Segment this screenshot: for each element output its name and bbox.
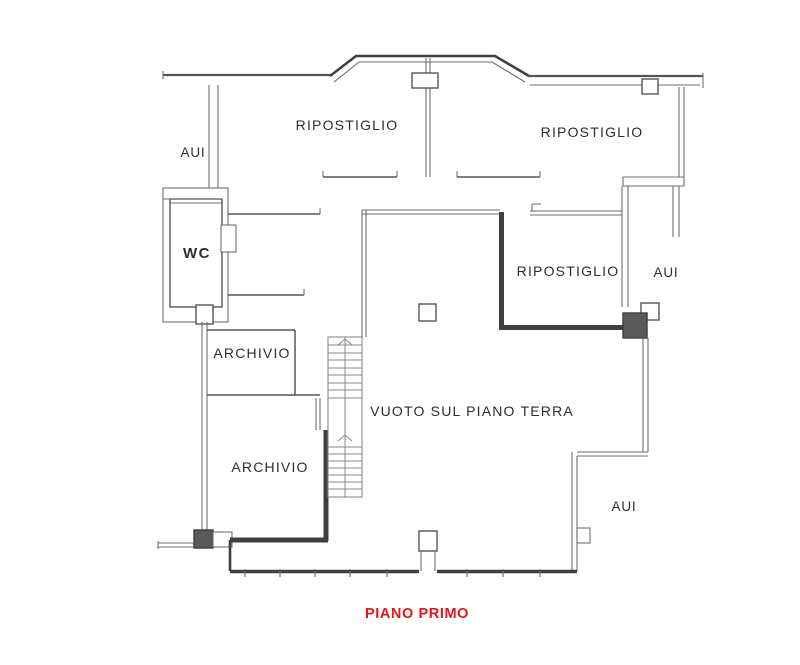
wall-notch — [577, 528, 590, 543]
staircase — [328, 337, 362, 497]
right-aui-dark-pillar — [623, 313, 647, 338]
room-label-aui-mid-right: AUI — [654, 265, 679, 280]
floor-plan-page: AUI RIPOSTIGLIO RIPOSTIGLIO WC RIPOSTIGL… — [0, 0, 800, 665]
wc-bottom-pillar — [196, 305, 213, 324]
room-label-ripostiglio-mid-right: RIPOSTIGLIO — [517, 263, 620, 279]
wall-box-top-right — [642, 79, 658, 94]
floor-plan-canvas: AUI RIPOSTIGLIO RIPOSTIGLIO WC RIPOSTIGL… — [0, 0, 800, 665]
room-label-ripostiglio-top-left: RIPOSTIGLIO — [296, 117, 399, 133]
room-label-archivio-upper: ARCHIVIO — [213, 345, 290, 361]
archivio-upper-room-walls — [207, 330, 320, 395]
room-label-wc: WC — [183, 245, 211, 262]
wc-door-jamb — [221, 225, 236, 252]
room-label-ripostiglio-top-right: RIPOSTIGLIO — [541, 124, 644, 140]
terrace-pillar — [419, 531, 437, 551]
corridor-wall-stubs — [228, 208, 320, 295]
room-label-aui-bottom-right: AUI — [612, 499, 637, 514]
left-aui-partition-wall — [209, 85, 218, 200]
room-label-aui-top-left: AUI — [181, 145, 206, 160]
void-pillar — [419, 304, 436, 321]
bottom-left-pillar — [194, 530, 213, 548]
room-label-archivio-lower: ARCHIVIO — [231, 459, 308, 475]
archivio-lower-room-walls — [230, 398, 328, 571]
floor-title: PIANO PRIMO — [365, 606, 469, 622]
room-label-void: VUOTO SUL PIANO TERRA — [370, 403, 574, 419]
wall-box-top-center — [412, 73, 438, 88]
